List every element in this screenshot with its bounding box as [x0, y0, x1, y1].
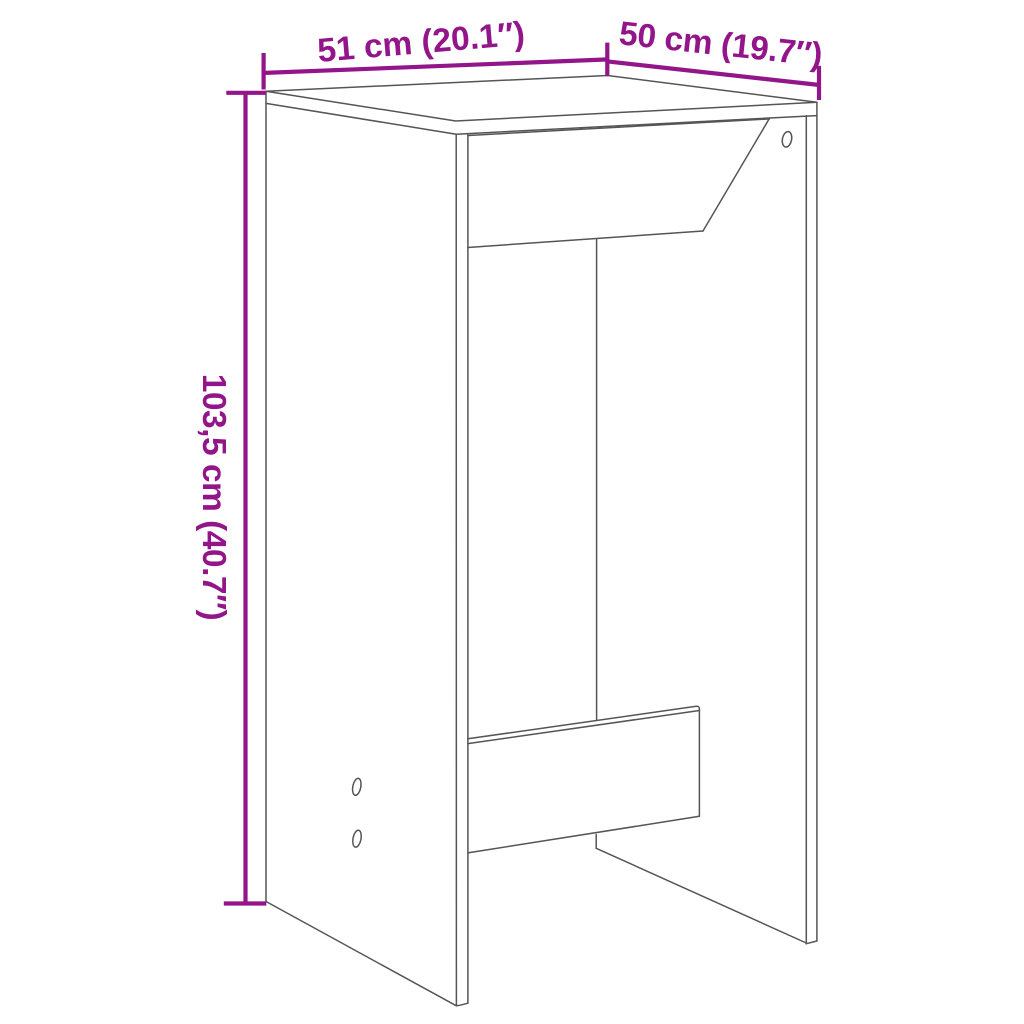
svg-text:103,5 cm (40.7″): 103,5 cm (40.7″) [195, 374, 232, 620]
